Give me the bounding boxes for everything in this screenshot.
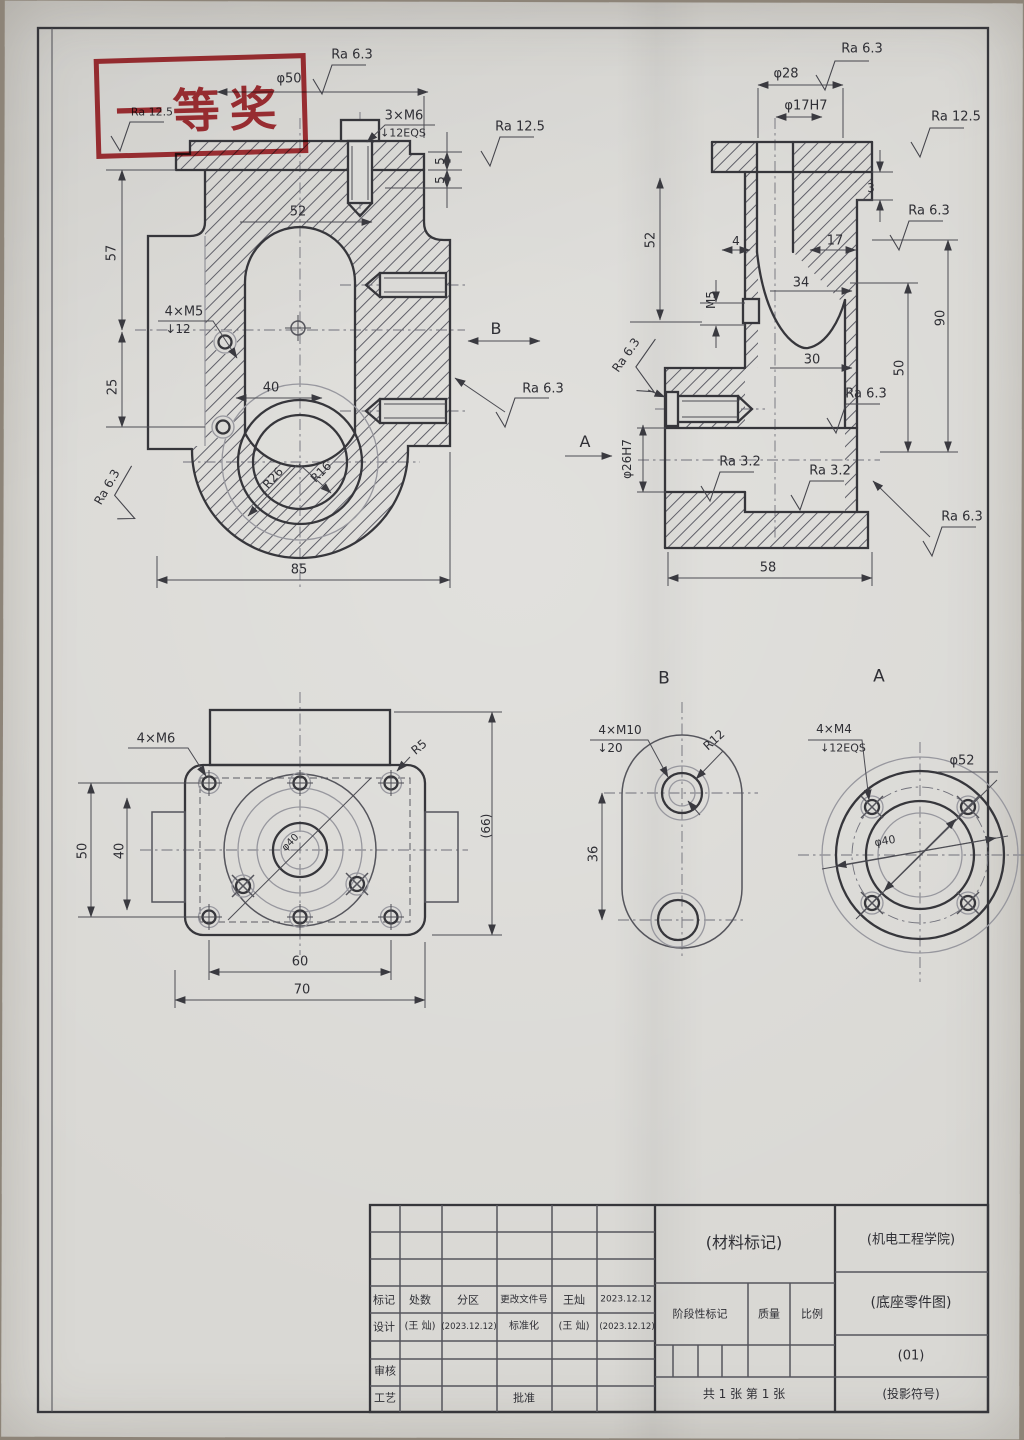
side-view — [638, 118, 880, 548]
drawing-linework — [0, 0, 1024, 1440]
side-view-dimensions — [565, 61, 976, 586]
award-stamp-text: 一等奖 — [115, 69, 288, 143]
title-block — [370, 1205, 988, 1412]
award-stamp: 一等奖 — [94, 53, 309, 159]
engineering-drawing-sheet: Ra 6.3φ50Ra 12.53×M6↓12EQSRa 12.55552574… — [0, 0, 1024, 1440]
view-b — [590, 702, 758, 958]
view-a — [798, 740, 1024, 982]
top-view-dimensions — [78, 712, 502, 1008]
front-view — [135, 112, 468, 588]
top-view — [140, 692, 468, 955]
